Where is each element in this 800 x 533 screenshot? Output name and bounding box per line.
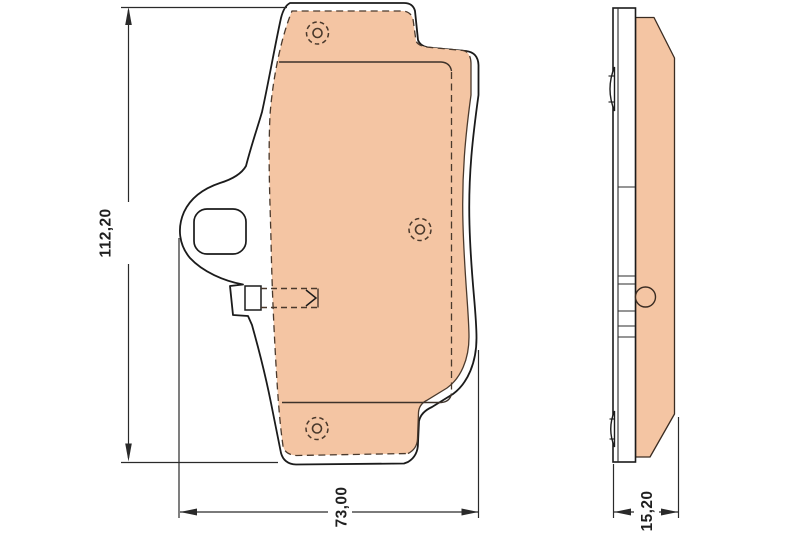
side-rivet-bump-bottom [610,411,615,447]
front-view [180,3,479,465]
side-friction-material [636,18,675,458]
brake-pad-drawing: 112,20 73,00 15,20 [0,0,800,533]
height-arrow-up [125,7,132,25]
side-sensor-hole [636,287,656,307]
thickness-arrow-right [661,509,678,516]
height-dimension-label: 112,20 [98,209,115,258]
guide-lug-hole [194,209,246,254]
width-arrow-right [462,509,479,516]
technical-drawing-canvas: 112,20 73,00 15,20 [0,0,800,533]
side-rivet-bump-top [609,67,615,111]
thickness-arrow-left [614,509,631,516]
pin-stub [245,286,261,310]
height-arrow-down [125,444,132,462]
width-dimension-label: 73,00 [334,487,351,528]
friction-material [269,11,471,456]
thickness-dimension-label: 15,20 [639,491,656,532]
side-backing-plate [613,8,636,462]
side-view [609,8,675,462]
width-arrow-left [180,509,197,516]
